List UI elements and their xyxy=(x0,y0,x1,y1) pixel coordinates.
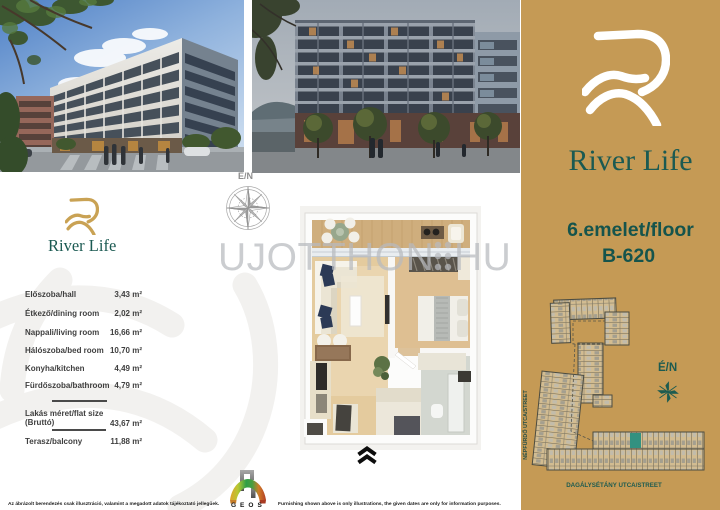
svg-text:HU: HU xyxy=(454,236,511,277)
svg-text:UJOTTHON: UJOTTHON xyxy=(218,236,434,277)
